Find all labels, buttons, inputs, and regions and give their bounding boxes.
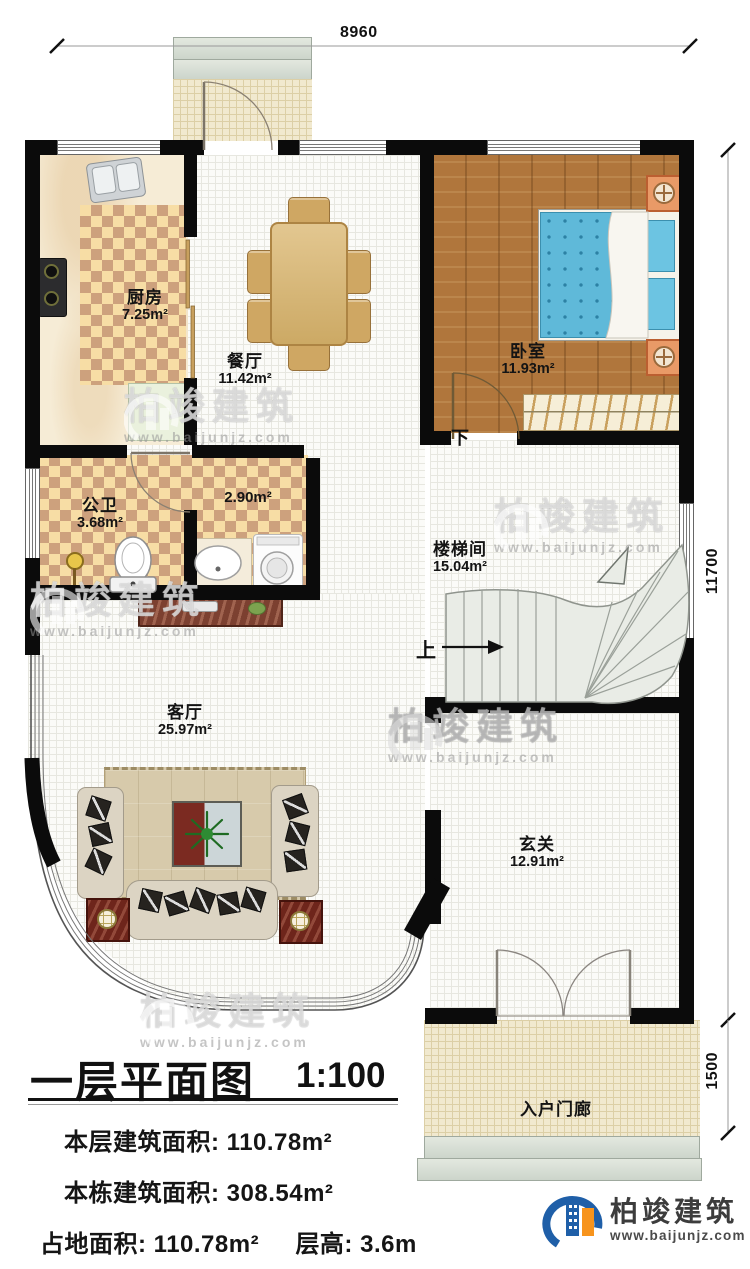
kitchen-counter <box>128 383 186 441</box>
wall-bedroom-left <box>420 155 434 445</box>
sofa-pillow <box>88 822 113 847</box>
dimension-side-porch: 1500 <box>704 1052 722 1090</box>
dimension-side-main: 11700 <box>704 548 722 594</box>
bed-pillow <box>647 278 675 330</box>
room-label-kitchen: 厨房 7.25m² <box>95 288 195 323</box>
window <box>487 140 641 155</box>
wall <box>386 140 488 155</box>
north-porch-step <box>173 37 312 60</box>
console-tray <box>182 601 218 612</box>
utility-counter <box>188 538 252 590</box>
wall-foyer-left <box>425 810 441 924</box>
floor-plan-canvas: 柏竣建筑 www.baijunjz.com 柏竣建筑 www.baijunjz.… <box>0 0 750 1269</box>
room-label-porch: 入户门廊 <box>506 1100 606 1119</box>
stair-up-label: 上 <box>416 634 436 663</box>
wall-kitchen-dining <box>184 155 197 237</box>
wall <box>160 140 204 155</box>
sofa-pillow <box>216 891 240 915</box>
wall-bedroom-bottom <box>420 431 451 445</box>
kitchen-sink-basin <box>91 165 117 196</box>
wardrobe <box>523 394 681 431</box>
wall-utility-right <box>306 458 320 598</box>
wall-bedroom-bottom <box>517 431 694 445</box>
kitchen-sink-basin <box>115 162 141 193</box>
wall <box>25 558 40 655</box>
stove-burner <box>44 291 59 306</box>
wall-bath-top <box>25 445 127 458</box>
bed-pillow <box>647 220 675 272</box>
room-label-dining: 餐厅 11.42m² <box>195 352 295 387</box>
dining-table <box>270 222 348 346</box>
stat-footprint-height: 占地面积: 110.78m² 层高: 3.6m <box>40 1224 417 1259</box>
wall <box>679 140 694 505</box>
wall <box>25 140 40 470</box>
wall <box>679 638 694 1022</box>
room-label-living: 客厅 25.97m² <box>135 703 235 738</box>
washing-machine <box>253 534 303 591</box>
end-table-lamp <box>97 909 117 929</box>
entry-porch-floor <box>424 1020 700 1137</box>
stove-burner <box>44 264 59 279</box>
sofa-pillow <box>138 888 163 913</box>
dimension-top: 8960 <box>340 24 378 42</box>
entry-porch-step <box>417 1158 702 1181</box>
company-logo-text: 柏竣建筑 <box>610 1190 738 1230</box>
room-label-bedroom: 卧室 11.93m² <box>478 342 578 377</box>
stat-building-area: 本栋建筑面积: 308.54m² <box>64 1173 333 1208</box>
wall-kitchen-dining <box>184 378 197 445</box>
plan-scale: 1:100 <box>296 1056 386 1096</box>
window <box>57 140 161 155</box>
sofa-pillow <box>284 849 308 873</box>
wall-bath-top <box>192 445 304 458</box>
end-table-lamp <box>290 911 310 931</box>
stair-foyer-floor <box>430 440 681 1022</box>
wall-foyer-left <box>425 697 441 723</box>
entry-porch-step <box>424 1136 700 1159</box>
company-logo-icon <box>542 1186 606 1256</box>
window <box>679 503 694 640</box>
title-underline-thin <box>28 1104 398 1105</box>
wall-foyer-bottom <box>425 1008 497 1024</box>
wall-foyer-bottom <box>630 1008 694 1024</box>
bed-mattress <box>540 212 640 338</box>
coffee-table <box>172 801 242 867</box>
nightstand-lamp <box>653 182 675 204</box>
stat-floor-area: 本层建筑面积: 110.78m² <box>64 1122 332 1157</box>
wall <box>278 140 300 155</box>
window <box>299 140 387 155</box>
console-plant <box>248 602 266 615</box>
title-underline <box>28 1098 398 1101</box>
north-porch-tile <box>173 79 312 141</box>
room-label-bath: 公卫 3.68m² <box>52 496 148 531</box>
stair-down-label: 下 <box>451 424 469 450</box>
window <box>25 468 40 560</box>
wall-bath-bottom <box>25 585 320 600</box>
room-label-foyer: 玄关 12.91m² <box>487 835 587 870</box>
room-label-stair: 楼梯间 15.04m² <box>412 540 508 575</box>
wall-stair-foyer <box>425 697 686 713</box>
nightstand-lamp <box>653 346 675 368</box>
north-porch-step <box>173 59 312 80</box>
room-label-utility: 2.90m² <box>200 490 296 507</box>
company-website: www.baijunjz.com <box>610 1228 746 1243</box>
